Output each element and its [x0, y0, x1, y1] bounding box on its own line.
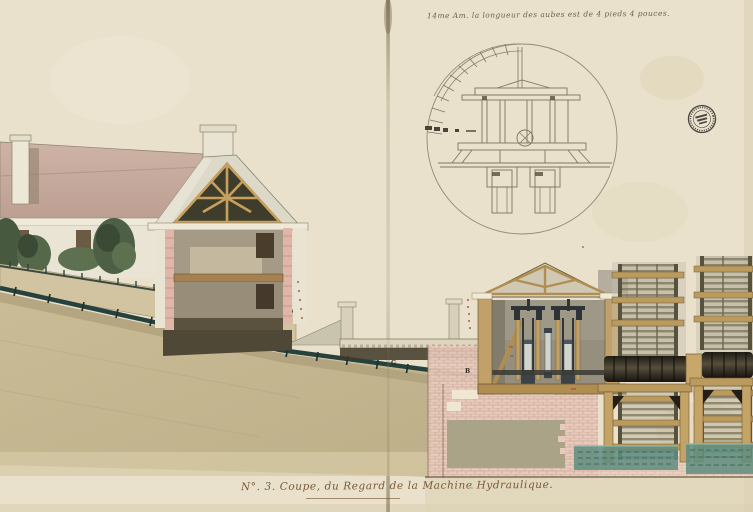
stone-pier [341, 305, 353, 341]
left-chimney [12, 138, 29, 204]
caption-underline [306, 498, 400, 499]
tailrace-water [574, 444, 753, 474]
floor-beam [174, 274, 283, 282]
fold-crease-overlay [387, 0, 390, 512]
interior-door-upper [256, 233, 274, 258]
stone-pier [449, 302, 459, 342]
timber-wall-left [478, 296, 492, 394]
chimney-shadow [29, 148, 39, 204]
eaves-cornice [0, 218, 163, 226]
drawing-canvas [0, 0, 753, 512]
interior-door-lower [256, 284, 274, 309]
masonry-core [447, 420, 565, 468]
crank-rod [491, 370, 606, 375]
brick-quoin-left [165, 230, 174, 330]
drawing-sheet: 14me Am. la longueur des aubes est de 4 … [0, 0, 753, 512]
